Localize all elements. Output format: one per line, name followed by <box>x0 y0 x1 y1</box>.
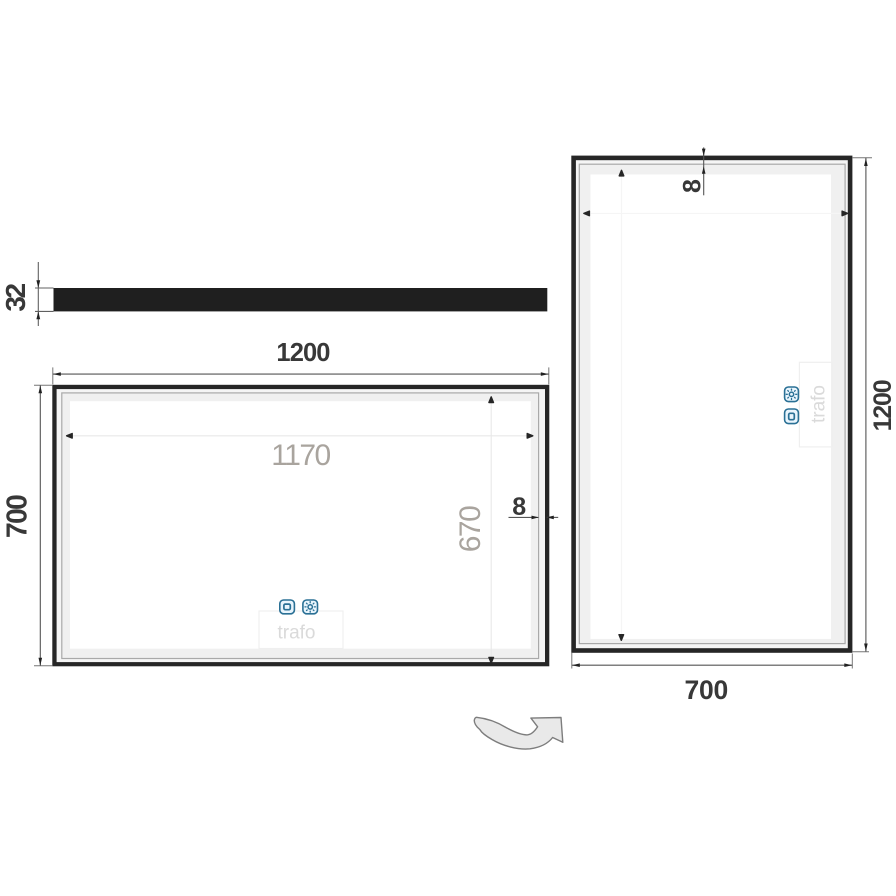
svg-text:1170: 1170 <box>271 439 330 472</box>
svg-text:32: 32 <box>0 284 31 312</box>
svg-text:700: 700 <box>684 675 728 705</box>
svg-text:1200: 1200 <box>276 339 330 367</box>
svg-text:8: 8 <box>679 179 707 193</box>
svg-text:trafo: trafo <box>809 385 830 423</box>
svg-text:trafo: trafo <box>277 623 315 644</box>
svg-text:700: 700 <box>2 495 34 538</box>
svg-text:8: 8 <box>512 493 526 521</box>
svg-text:670: 670 <box>454 506 487 552</box>
svg-text:1200: 1200 <box>869 380 896 431</box>
